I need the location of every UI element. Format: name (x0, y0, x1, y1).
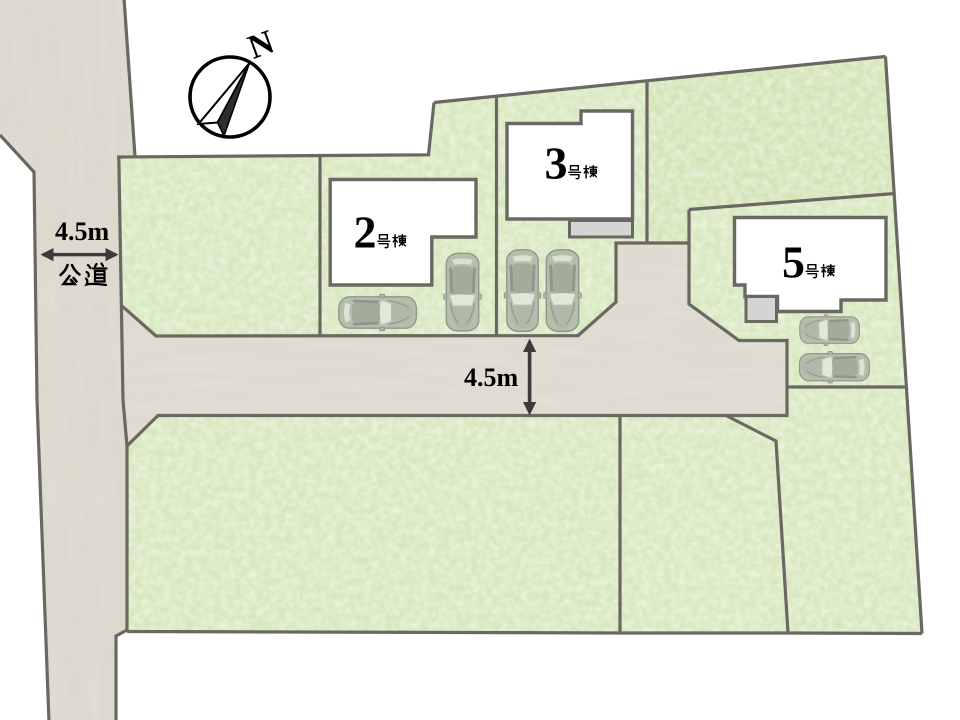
svg-text:5: 5 (782, 237, 805, 288)
svg-text:2: 2 (354, 207, 377, 258)
svg-text:3: 3 (545, 138, 568, 189)
svg-text:4.5m: 4.5m (464, 363, 519, 392)
svg-text:4.5m: 4.5m (55, 217, 110, 246)
